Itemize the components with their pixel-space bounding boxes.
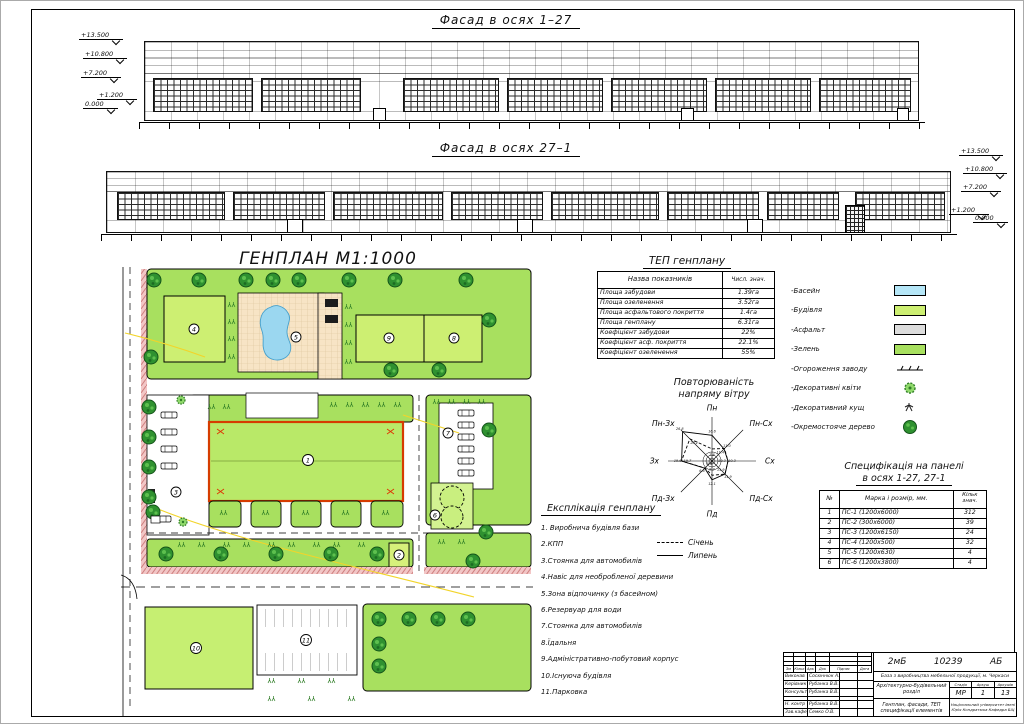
tep-row: Площа асфальтового покриття1.4га [598,309,775,319]
genplan-drawing: 1 2 3 4 5 6 7 8 9 10 11 [121,267,533,717]
explication-item: 1. Виробнича будівля бази [541,524,676,532]
tep-row: Площа забудови1.39га [598,289,775,299]
svg-text:2: 2 [397,552,401,560]
elevation-mark: +13.500 [79,31,123,40]
rose-value: 11.9 [717,468,725,472]
pool [260,306,291,360]
fence-south-west [141,567,413,574]
label-7: 7 [443,428,453,438]
label-3: 3 [171,487,181,497]
explication-item: 8.Їдальня [541,639,676,647]
rose-dir-label: Пн [707,403,718,412]
spec-row: 1ПС-1 (1200х6000)312 [820,508,987,518]
explication-item: 6.Резервуар для води [541,606,676,614]
spec-title: Специфікація на панелі в осях 1-27, 27-1 [819,461,989,486]
driveway [246,393,318,418]
sheets-total: 13 [995,688,1016,698]
window-block [767,192,839,220]
map-legend: -Басейн-Будівля-Асфальт-Зелень-Огороженн… [791,281,973,437]
elevation-mark: +10.800 [83,50,127,59]
rose-value: 10.3 [718,459,726,463]
change-table [784,653,873,666]
explication-item: 9.Адміністративно-побутовий корпус [541,655,676,663]
tep-block: ТЕП генплану Назва показників Числ. знач… [597,255,777,359]
swatch-icon [893,324,927,336]
spec-block: Специфікація на панелі в осях 1-27, 27-1… [819,461,989,569]
legend-item: -Зелень [791,340,973,360]
signature-row: КонсультРубанка В.В. [784,689,873,697]
svg-text:5: 5 [294,334,298,342]
label-9: 9 [384,333,394,343]
window-block [667,192,759,220]
rose-value: 11.0 [723,444,731,448]
window-block [117,192,225,220]
legend-label: -Огороження заводу [791,365,867,373]
title-block-signatures: ЗмКількАркДокПідписДата ВиконавСосюннюк … [784,653,874,716]
legend-item: -Асфальт [791,320,973,340]
tep-col-name: Назва показників [598,272,723,289]
rose-value: 11.4 [716,450,724,454]
shaft [845,205,865,233]
window-block [333,192,443,220]
window-block [233,192,325,220]
fence-west [141,269,147,569]
svg-text:8: 8 [452,335,456,343]
window-block [403,78,499,112]
wind-rose-title: Повторюваність напряму вітру [629,377,799,401]
facade-1-27-drawing [144,41,919,121]
label-1: 1 [303,455,314,466]
bush-icon [893,402,927,414]
sheet-content: Генплан, фасади, ТЕПспецифікації елемент… [874,699,950,716]
svg-text:3: 3 [174,489,178,497]
reservoir-2 [441,506,463,528]
sheet-number: 1 [972,688,994,698]
svg-text:4: 4 [192,326,196,334]
rose-value: 9.2 [709,467,714,471]
rose-dir-label: Сх [765,456,775,465]
legend-label: -Зелень [791,345,820,353]
signature-rows: ВиконавСосюннюк А.КерівникРубанка В.В.Ко… [784,673,873,716]
swatch-icon [893,285,927,297]
stage-value: МР [950,688,972,698]
rose-value: 6.6 [699,469,704,473]
legend-item: -Декоративний кущ [791,398,973,418]
rose-value: 26.8 [676,427,684,431]
document-code: 2мБ 10239 АБ [874,653,1016,672]
label-6: 6 [430,510,440,520]
label-10: 10 [191,643,202,654]
rose-value: 20.2 [690,441,698,445]
tep-title: ТЕП генплану [597,255,777,267]
title-block-main: 2мБ 10239 АБ База з виробництва мебельно… [874,653,1016,716]
explication-item: 2.КПП [541,540,676,548]
window-block [451,192,543,220]
window-block [507,78,603,112]
elevation-mark: +13.500 [959,147,1003,156]
explication-item: 7.Стоянка для автомобилів [541,622,676,630]
legend-label: -Декоративні квіти [791,384,861,392]
legend-item: -Басейн [791,281,973,301]
legend-label: -Басейн [791,287,820,295]
fence-icon [893,363,927,375]
rose-value: 19.6 [674,459,682,463]
door [747,219,763,232]
top-green-block [147,269,531,379]
rose-dir-label: Зх [650,456,660,465]
facade-1-title: Фасад в осях 1–27 [381,13,631,27]
facade-27-1-drawing [106,171,951,233]
legend-label: -Окремостояче дерево [791,423,875,431]
facade-2-title: Фасад в осях 27–1 [381,141,631,155]
stage-table: Стадія Аркуш Аркушів МР 1 13 [950,682,1016,698]
window-block [611,78,707,112]
label-5: 5 [291,332,301,342]
explication-item: 3.Стоянка для автомобилів [541,557,676,565]
spec-row: 3ПС-3 (1200х6150)24 [820,528,987,538]
explication-item: 5.Зона відпочинку (з басейном) [541,590,676,598]
organization: Національний університет імені Юрія Конд… [950,699,1016,716]
spec-table: № Марка і розмір, мм. Кільк знач. 1ПС-1 … [819,490,987,569]
tep-table: Назва показників Числ. знач. Площа забуд… [597,271,775,359]
svg-text:1: 1 [306,457,310,465]
east-lawn [363,604,531,691]
legend-label: -Декоративний кущ [791,404,864,412]
spec-row: 2ПС-2 (300х6000)39 [820,518,987,528]
tep-row: Площа озеленення3.52га [598,299,775,309]
drawing-sheet: Фасад в осях 1–27 +13.500+10.800+7.200+1… [0,0,1024,724]
title-block: ЗмКількАркДокПідписДата ВиконавСосюннюк … [783,652,1017,717]
rose-dir-label: Пн-Сх [749,419,772,428]
rose-value: 7.8 [709,453,715,457]
door [681,108,694,120]
tep-col-value: Числ. знач. [722,272,774,289]
window-block [819,78,911,112]
swatch-icon [893,343,927,355]
rose-dir-label: Пд-Зх [652,494,675,503]
facade-1-axis-ticks [139,122,925,129]
tree-icon [893,421,927,433]
explication-block: Експлікація генплану 1. Виробнича будівл… [541,503,676,704]
window-block [261,78,361,112]
svg-text:11: 11 [302,637,310,645]
elevation-mark: 0.000 [83,100,118,109]
signature-header: ЗмКількАркДокПідписДата [784,666,873,673]
facade-2-axis-ticks [101,234,957,241]
flower-icon [893,382,927,394]
door [287,219,303,232]
tep-row: Площа генплану6.31га [598,319,775,329]
label-11: 11 [301,635,312,646]
legend-label: -Асфальт [791,326,825,334]
legend-label: -Будівля [791,306,822,314]
signature-row: КерівникРубанка В.В. [784,681,873,689]
spec-row: 6ПС-6 (1200х3800)4 [820,558,987,568]
explication-item: 11.Парковка [541,688,676,696]
lawn-tongues [209,501,403,527]
window-block [715,78,811,112]
label-8: 8 [449,333,459,343]
signature-row: ВиконавСосюннюк А. [784,673,873,681]
rose-dir-label: Пд-Сх [749,494,773,503]
door [373,108,386,120]
signature-row: Зав.кафедСемко О.В. [784,709,873,716]
fence-south-east [424,567,531,574]
window-block [551,192,659,220]
tep-row: Коефіцієнт асф. покриття22.1% [598,339,775,349]
elevation-mark: +1.200 [97,91,137,100]
svg-text:9: 9 [387,335,391,343]
rose-dir-label: Пд [707,509,718,518]
legend-item: -Огороження заводу [791,359,973,379]
door [517,219,533,232]
window-block [855,192,945,220]
rose-value: 16.6 [708,429,716,433]
label-2: 2 [394,550,404,560]
spec-row: 4ПС-4 (1200х500)32 [820,538,987,548]
legend-item: -Будівля [791,301,973,321]
svg-text:6: 6 [433,512,437,520]
window-block [153,78,253,112]
tep-row: Коефіцієнт забудови22% [598,329,775,339]
svg-text:10: 10 [192,645,200,653]
explication-title: Експлікація генплану [541,503,676,514]
elevation-mark: +7.200 [961,183,1001,192]
section-name: Архітектурно-будівельний розділ [874,682,950,698]
legend-item: -Окремостояче дерево [791,418,973,438]
explication-item: 4.Навіс для необробленої деревини [541,573,676,581]
rose-value: 6.4 [707,462,712,466]
project-name: База з виробництва мебельної продукції, … [874,672,1016,682]
legend-item: -Декоративні квіти [791,379,973,399]
spec-row: 5ПС-5 (1200х630)4 [820,548,987,558]
rose-dir-label: Пн-Зх [652,419,675,428]
rose-value: 10.3 [728,459,736,463]
door [897,108,909,120]
rose-value: 11.9 [724,475,732,479]
label-4: 4 [189,324,199,334]
elevation-mark: +7.200 [81,69,121,78]
swatch-icon [893,304,927,316]
elevation-mark: +10.800 [963,165,1007,174]
elevation-mark: 0.000 [973,214,1008,223]
signature-row: Н. контрРубанка В.В. [784,701,873,709]
tep-row: Коефіцієнт озеленення55% [598,349,775,359]
genplan-title: ГЕНПЛАН М1:1000 [213,249,443,269]
explication-item: 10.Існуюча будівля [541,672,676,680]
rose-value: 12.1 [708,482,716,486]
